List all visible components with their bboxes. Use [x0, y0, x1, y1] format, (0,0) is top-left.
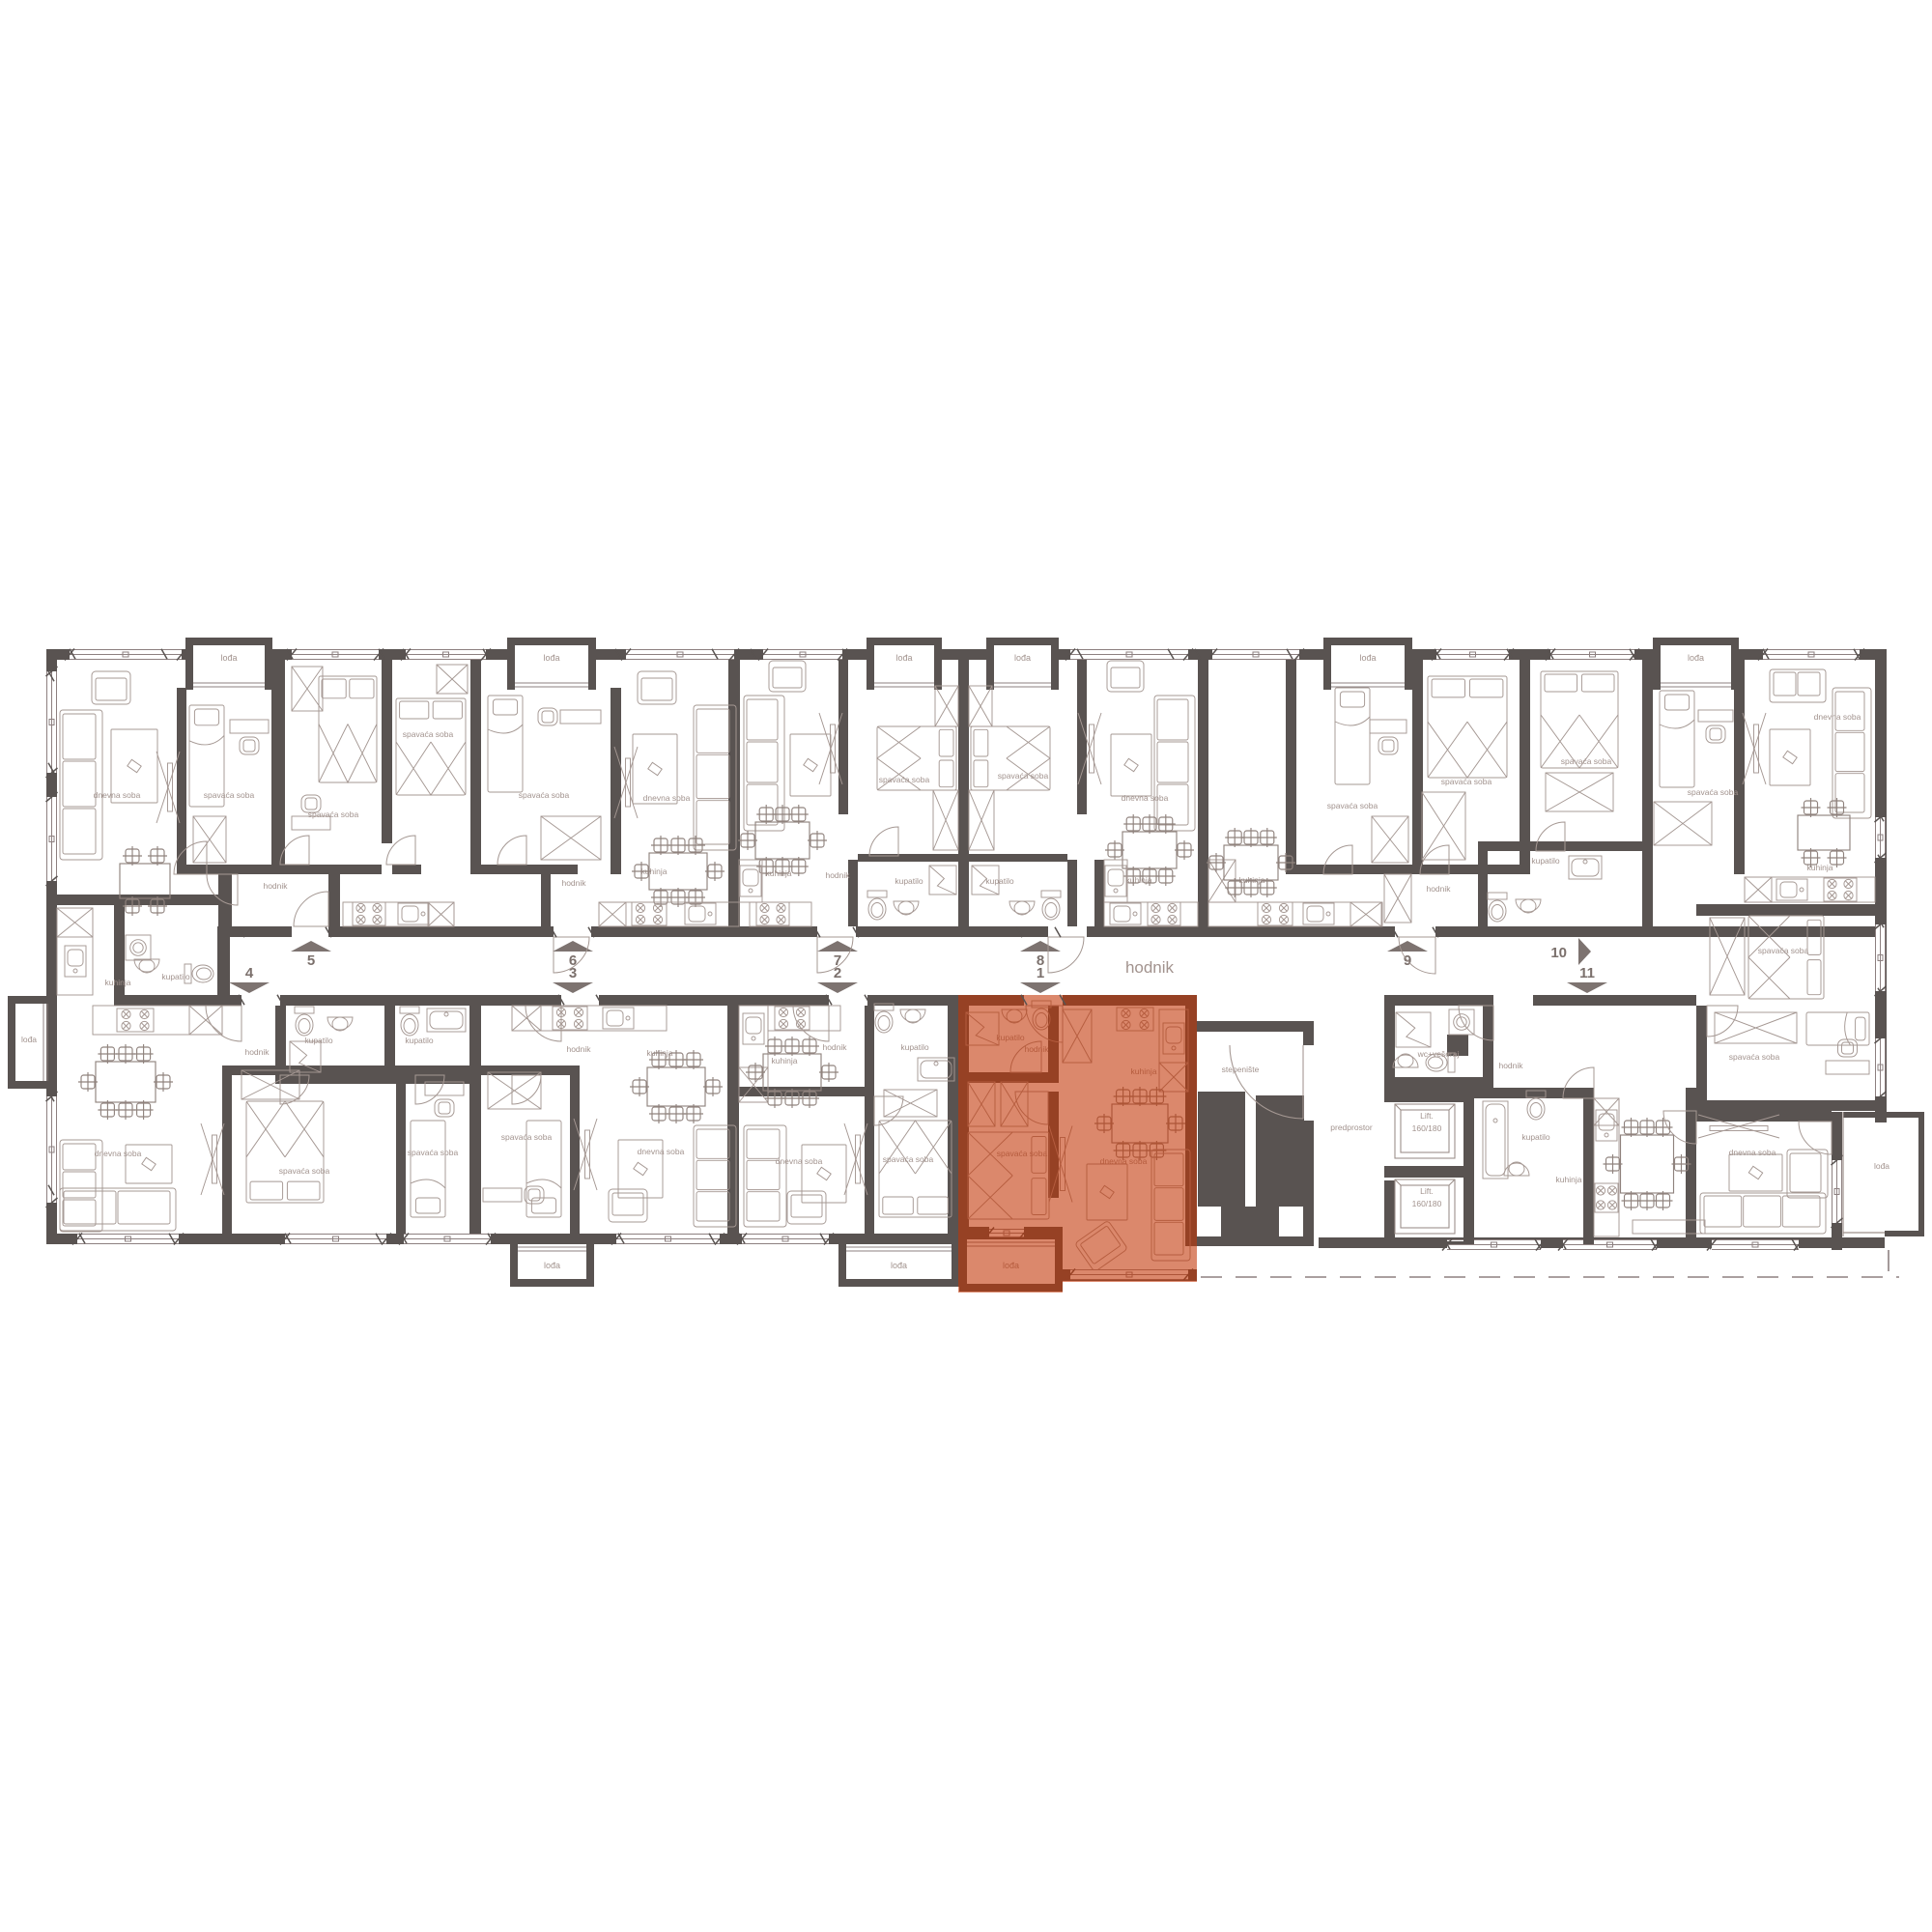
svg-text:kuhinja: kuhinja [1556, 1175, 1582, 1184]
svg-text:lođa: lođa [895, 653, 912, 663]
svg-text:hodnik: hodnik [822, 1042, 847, 1052]
svg-text:Lift.: Lift. [1420, 1186, 1434, 1196]
svg-text:160/180: 160/180 [1412, 1199, 1442, 1208]
svg-text:dnevna soba: dnevna soba [1814, 712, 1861, 722]
svg-text:spavaća soba: spavaća soba [1441, 777, 1492, 786]
svg-text:kupatilo: kupatilo [985, 876, 1014, 886]
svg-text:hodnik: hodnik [1125, 958, 1175, 977]
svg-text:dnevna soba: dnevna soba [776, 1156, 823, 1166]
svg-text:spavaća soba: spavaća soba [519, 790, 570, 800]
svg-text:lođa: lođa [543, 653, 559, 663]
svg-text:hodnik: hodnik [244, 1047, 270, 1057]
svg-text:lođa: lođa [1874, 1161, 1889, 1171]
svg-text:spavaća soba: spavaća soba [1688, 787, 1739, 797]
svg-text:dnevna soba: dnevna soba [1729, 1148, 1776, 1157]
svg-text:hodnik: hodnik [566, 1044, 591, 1054]
svg-text:kupatilo: kupatilo [161, 972, 190, 981]
svg-text:hodnik: hodnik [561, 878, 586, 888]
svg-text:dnevna soba: dnevna soba [643, 793, 691, 803]
svg-text:spavaća soba: spavaća soba [403, 729, 454, 739]
svg-text:hodnik: hodnik [1426, 884, 1451, 894]
svg-text:lođa: lođa [544, 1261, 560, 1270]
svg-text:kupatilo: kupatilo [304, 1036, 333, 1045]
svg-text:4: 4 [245, 965, 254, 981]
svg-text:spavaća soba: spavaća soba [204, 790, 255, 800]
svg-text:5: 5 [307, 952, 315, 969]
svg-text:lođa: lođa [891, 1261, 907, 1270]
svg-text:spavaća soba: spavaća soba [279, 1166, 330, 1176]
svg-text:stepenište: stepenište [1222, 1065, 1260, 1074]
svg-text:dnevna soba: dnevna soba [95, 1149, 142, 1158]
svg-text:kupatilo: kupatilo [1531, 856, 1560, 866]
svg-text:lođa: lođa [1688, 653, 1704, 663]
svg-text:dnevna soba: dnevna soba [94, 790, 141, 800]
svg-text:kuhinja: kuhinja [772, 1056, 798, 1065]
svg-text:kuhinja: kuhinja [105, 978, 131, 987]
svg-text:kupatilo: kupatilo [900, 1042, 929, 1052]
svg-text:10: 10 [1550, 945, 1567, 961]
svg-text:kupatilo: kupatilo [1521, 1132, 1550, 1142]
svg-text:lođa: lođa [220, 653, 237, 663]
svg-text:lođa: lođa [1014, 653, 1031, 663]
svg-text:spavaća soba: spavaća soba [1729, 1052, 1780, 1062]
svg-text:160/180: 160/180 [1412, 1123, 1442, 1133]
svg-text:hodnik: hodnik [825, 870, 850, 880]
svg-text:hodnik: hodnik [1498, 1061, 1523, 1070]
svg-text:1: 1 [1037, 965, 1044, 981]
svg-text:hodnik: hodnik [263, 881, 288, 891]
svg-text:lođa: lođa [1359, 653, 1376, 663]
svg-text:dnevna soba: dnevna soba [638, 1147, 685, 1156]
svg-text:dnevna soba: dnevna soba [1122, 793, 1169, 803]
svg-text:predprostor: predprostor [1330, 1122, 1373, 1132]
svg-text:spavaća soba: spavaća soba [408, 1148, 459, 1157]
svg-text:spavaća soba: spavaća soba [998, 771, 1049, 781]
svg-text:spavaća soba: spavaća soba [308, 810, 359, 819]
svg-text:11: 11 [1579, 965, 1595, 981]
svg-text:lođa: lođa [21, 1035, 37, 1044]
svg-text:kupatilo: kupatilo [405, 1036, 434, 1045]
svg-text:2: 2 [834, 965, 841, 981]
svg-text:spavaća soba: spavaća soba [1327, 801, 1378, 810]
svg-text:Lift.: Lift. [1420, 1111, 1434, 1121]
svg-text:kupatilo: kupatilo [895, 876, 923, 886]
